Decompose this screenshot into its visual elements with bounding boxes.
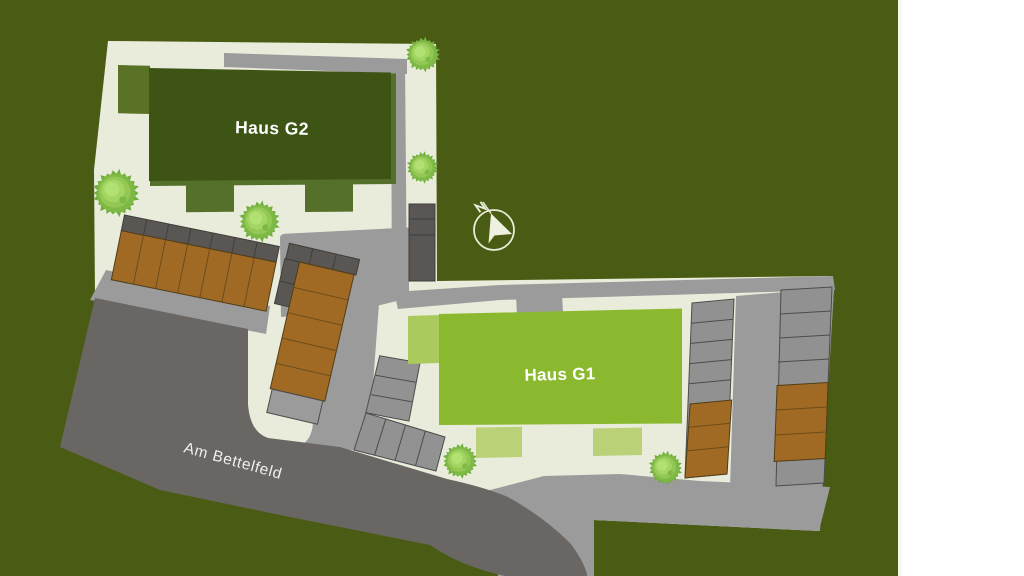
svg-text:Haus G2: Haus G2	[235, 117, 309, 139]
svg-text:Haus G1: Haus G1	[524, 364, 596, 385]
